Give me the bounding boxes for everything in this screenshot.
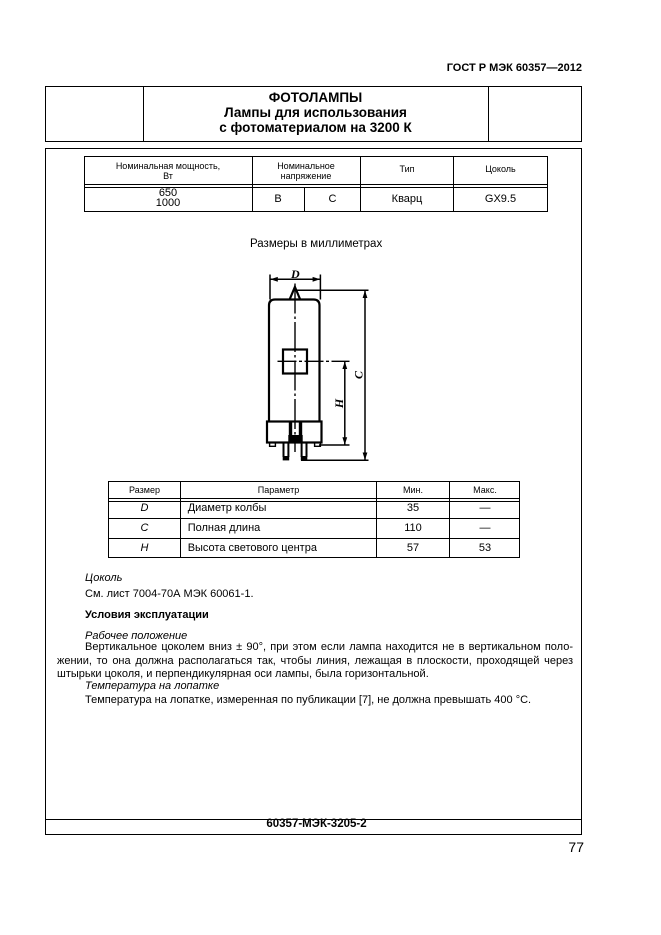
svg-text:C: C: [352, 370, 366, 379]
svg-text:D: D: [290, 267, 300, 281]
svg-text:H: H: [332, 398, 346, 409]
